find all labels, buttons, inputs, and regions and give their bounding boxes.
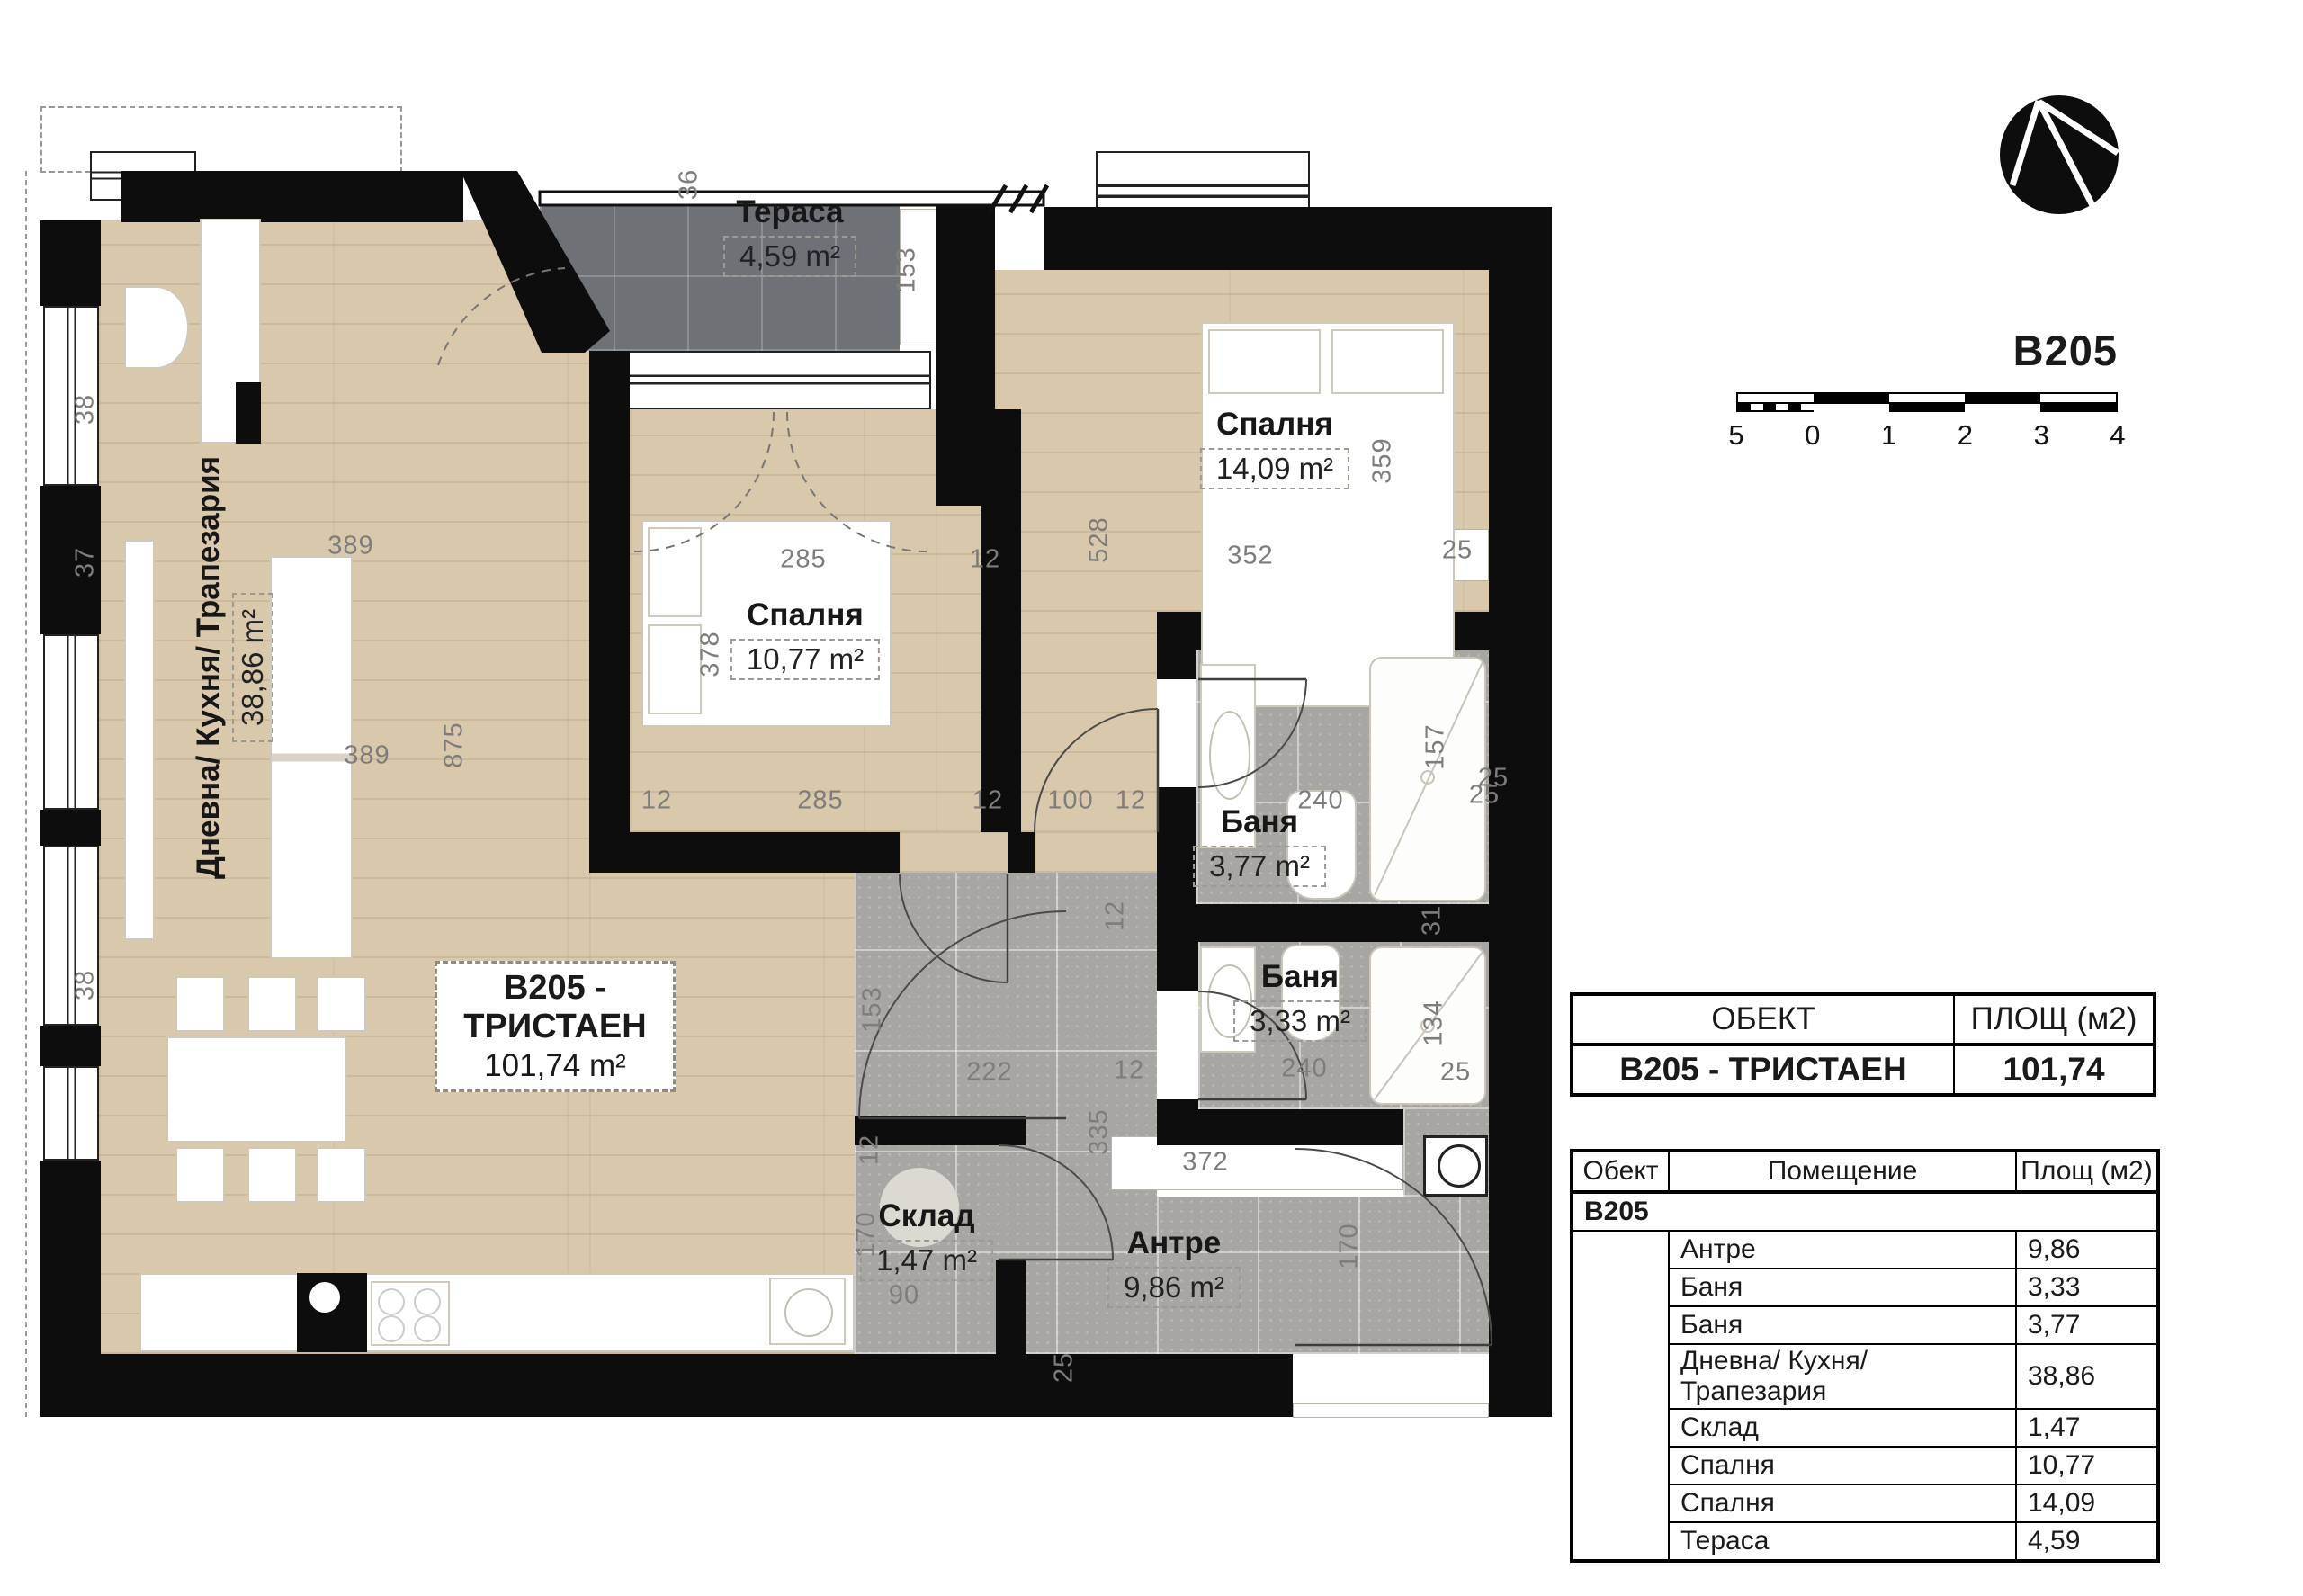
wall: [1044, 207, 1552, 270]
dimension-label: 372: [1182, 1148, 1228, 1178]
room-area: 4,59 m²: [723, 236, 856, 277]
dimension-label: 12: [970, 545, 1000, 575]
wall: [40, 1026, 101, 1066]
room-area: 38,86 m²: [232, 593, 273, 742]
dimension-label: 875: [440, 722, 470, 767]
rooms-table-row: Спалня 14,09: [1572, 1484, 2158, 1522]
sink: [309, 1282, 340, 1313]
scale-tick: 2: [1958, 419, 1973, 452]
burner: [378, 1315, 405, 1342]
dimension-label: 335: [1085, 1108, 1115, 1154]
scale-bar: [1736, 392, 2118, 412]
rooms-cell-object: [1572, 1447, 1669, 1484]
dimension-label: 153: [892, 247, 922, 292]
balcony-door: [589, 351, 931, 409]
summary-table-row: B205 - ТРИСТАЕН 101,74: [1572, 1045, 2155, 1095]
unit-code-title: B205: [1898, 326, 2118, 375]
dimension-label: 31: [1418, 905, 1447, 936]
rooms-table-row: Баня 3,77: [1572, 1306, 2158, 1344]
room-area: 1,47 m²: [860, 1240, 993, 1281]
chair: [317, 976, 366, 1032]
window: [43, 1066, 99, 1161]
unit-label-box: B205 - ТРИСТАЕН 101,74 m²: [435, 961, 676, 1092]
dimension-label: 25: [1050, 1352, 1080, 1383]
rooms-col-object: Обект: [1572, 1151, 1669, 1192]
rooms-table-row: Антре 9,86: [1572, 1231, 2158, 1269]
wall: [1157, 1099, 1198, 1109]
floor-plan: Тераса 4,59 m² Спалня 14,09 m² Спалня 10…: [0, 0, 1601, 1596]
dimension-label: 25: [1442, 536, 1473, 566]
rooms-cell-area: 10,77: [2016, 1447, 2158, 1484]
dimension-label: 25: [1440, 1058, 1471, 1088]
kitchen-appliance: [236, 382, 261, 444]
rooms-cell-area: 14,09: [2016, 1484, 2158, 1522]
rooms-col-area: Площ (м2): [2016, 1151, 2158, 1192]
room-label-bath1: Баня 3,77 m²: [1193, 804, 1326, 887]
scale-bar-row: [1738, 394, 2116, 402]
dimension-label: 12: [1114, 1056, 1144, 1086]
wall: [996, 1260, 1026, 1354]
dimension-label: 100: [1047, 786, 1093, 816]
facade-outline-dashed: [25, 171, 27, 1417]
dining-table: [166, 1036, 346, 1143]
chair: [175, 976, 225, 1032]
rooms-cell-area: 4,59: [2016, 1522, 2158, 1561]
pillow: [1208, 329, 1321, 394]
dimension-label: 389: [327, 532, 373, 561]
wall: [589, 832, 900, 873]
burner: [414, 1288, 441, 1315]
scale-tick: 3: [2034, 419, 2049, 452]
chair: [175, 1147, 225, 1203]
dimension-label: 12: [1116, 786, 1146, 816]
rooms-cell-room: Баня: [1669, 1306, 2016, 1344]
door-threshold: [1035, 832, 1157, 873]
dimension-label: 528: [1085, 516, 1115, 562]
dimension-label: 359: [1368, 437, 1398, 483]
rooms-cell-object: [1572, 1344, 1669, 1409]
rooms-cell-object: [1572, 1231, 1669, 1269]
room-name: Склад: [860, 1198, 993, 1234]
rooms-cell-area: 9,86: [2016, 1231, 2158, 1269]
room-label-bedroom-mid: Спалня 10,77 m²: [730, 597, 880, 680]
scale-tick: 5: [1728, 419, 1743, 452]
wall: [40, 220, 101, 306]
rooms-cell-room: Тераса: [1669, 1522, 2016, 1561]
dimension-label: 285: [780, 545, 826, 575]
rooms-cell-area: 3,33: [2016, 1269, 2158, 1306]
wall: [1157, 787, 1196, 904]
sofa: [270, 556, 353, 959]
rooms-cell-object: [1572, 1269, 1669, 1306]
dimension-label: 170: [1335, 1223, 1365, 1269]
room-label-bedroom-top: Спалня 14,09 m²: [1200, 407, 1349, 489]
rooms-cell-room: Дневна/ Кухня/ Трапезария: [1669, 1344, 2016, 1409]
room-name: Баня: [1193, 804, 1326, 840]
rooms-col-room: Помещение: [1669, 1151, 2016, 1192]
pillow: [648, 624, 702, 714]
tv-unit: [124, 540, 155, 940]
rooms-cell-room: Спалня: [1669, 1484, 2016, 1522]
room-name: Дневна/ Кухня/ Трапезария: [191, 456, 227, 879]
rooms-cell-area: 1,47: [2016, 1409, 2158, 1447]
wall: [40, 1354, 1293, 1417]
unit-area: 101,74 m²: [459, 1048, 651, 1084]
room-label-living: Дневна/ Кухня/ Трапезария 38,86 m²: [191, 456, 273, 879]
dimension-label: 157: [1421, 723, 1451, 769]
unit-name: B205 - ТРИСТАЕН: [459, 969, 651, 1046]
burner: [378, 1288, 405, 1315]
door-threshold: [900, 832, 1008, 873]
rooms-cell-room: Антре: [1669, 1231, 2016, 1269]
dimension-label: 37: [71, 547, 101, 578]
room-label-bath2: Баня 3,33 m²: [1233, 959, 1367, 1042]
room-name: Спалня: [730, 597, 880, 633]
rooms-cell-object: [1572, 1522, 1669, 1561]
shower: [1369, 657, 1486, 901]
dimension-label: 12: [856, 1134, 885, 1165]
dimension-label: 134: [1420, 1000, 1449, 1045]
pillow: [648, 527, 702, 617]
summary-col-object: ОБЕКТ: [1572, 994, 1954, 1045]
room-name: Тераса: [723, 194, 856, 230]
room-label-storage: Склад 1,47 m²: [860, 1198, 993, 1281]
rooms-table-row: Баня 3,33: [1572, 1269, 2158, 1306]
summary-table: ОБЕКТ ПЛОЩ (м2) B205 - ТРИСТАЕН 101,74: [1570, 992, 2156, 1097]
dimension-label: 285: [797, 786, 843, 816]
dimension-label: 12: [1101, 901, 1131, 931]
summary-area: 101,74: [1954, 1045, 2155, 1095]
scale-bar-ticks: 012345: [1736, 419, 2118, 450]
chair: [247, 976, 297, 1032]
summary-object: B205 - ТРИСТАЕН: [1572, 1045, 1954, 1095]
logo-icon: [2000, 95, 2119, 214]
dimension-label: 153: [858, 986, 888, 1032]
rooms-cell-area: 3,77: [2016, 1306, 2158, 1344]
rooms-table-row: Дневна/ Кухня/ Трапезария 38,86: [1572, 1344, 2158, 1409]
rooms-table-row: Тераса 4,59: [1572, 1522, 2158, 1561]
room-area: 9,86 m²: [1107, 1267, 1241, 1308]
wall: [1489, 207, 1552, 1417]
window: [43, 634, 99, 810]
rooms-cell-room: Баня: [1669, 1269, 2016, 1306]
rooms-table-row: Спалня 10,77: [1572, 1447, 2158, 1484]
wall: [1008, 832, 1035, 873]
summary-table-header: ОБЕКТ ПЛОЩ (м2): [1572, 994, 2155, 1045]
summary-col-area: ПЛОЩ (м2): [1954, 994, 2155, 1045]
wall: [1157, 942, 1198, 991]
dimension-label: 36: [675, 169, 704, 200]
dimension-label: 12: [972, 786, 1003, 816]
dimension-label: 352: [1227, 542, 1273, 571]
washing-machine-door: [1438, 1144, 1481, 1188]
burner: [414, 1315, 441, 1342]
scale-tick: 0: [1805, 419, 1820, 452]
sink-basin: [784, 1288, 833, 1337]
rooms-table-row: Склад 1,47: [1572, 1409, 2158, 1447]
rooms-table-group-row: B205: [1572, 1192, 2158, 1231]
dimension-label: 389: [344, 741, 390, 771]
sink-basin: [1209, 711, 1250, 800]
dimension-label: 222: [966, 1058, 1012, 1088]
rooms-table-group: B205: [1572, 1192, 2158, 1231]
rooms-cell-object: [1572, 1409, 1669, 1447]
rooms-cell-object: [1572, 1306, 1669, 1344]
dimension-label: 378: [696, 631, 726, 677]
rooms-table-header: Обект Помещение Площ (м2): [1572, 1151, 2158, 1192]
dimension-label: 240: [1281, 1054, 1327, 1084]
room-area: 10,77 m²: [730, 639, 880, 680]
chair: [247, 1147, 297, 1203]
wall: [1157, 1109, 1403, 1145]
dimension-label: 38: [71, 970, 101, 1000]
room-name: Антре: [1107, 1225, 1241, 1261]
room-name: Баня: [1233, 959, 1367, 995]
floor-plan-sheet: { "header": { "unit_code": "B205" }, "pl…: [0, 0, 2303, 1596]
room-area: 3,77 m²: [1193, 846, 1326, 887]
wall: [589, 351, 630, 873]
room-area: 14,09 m²: [1200, 448, 1349, 489]
rooms-cell-room: Склад: [1669, 1409, 2016, 1447]
dimension-label: 12: [641, 786, 672, 816]
room-name: Спалня: [1200, 407, 1349, 443]
scale-bar-row: [1738, 402, 2116, 412]
dimension-label: 90: [889, 1281, 919, 1311]
rooms-cell-room: Спалня: [1669, 1447, 2016, 1484]
side-table: [124, 286, 189, 369]
wall: [40, 810, 101, 846]
wall: [936, 205, 995, 506]
wall: [1157, 650, 1196, 679]
rooms-cell-object: [1572, 1484, 1669, 1522]
wall: [1489, 1354, 1552, 1417]
entry-threshold: [1293, 1403, 1489, 1418]
scale-tick: 4: [2110, 419, 2125, 452]
rooms-table-body: Антре 9,86 Баня 3,33 Баня 3,77 Дневна/ К…: [1572, 1231, 2158, 1561]
wall: [121, 171, 463, 222]
room-label-terrace: Тераса 4,59 m²: [723, 194, 856, 277]
dimension-label: 25: [1478, 764, 1509, 794]
pillow: [1331, 329, 1444, 394]
room-area: 3,33 m²: [1233, 1000, 1367, 1042]
room-label-hall: Антре 9,86 m²: [1107, 1225, 1241, 1308]
scale-tick: 1: [1881, 419, 1896, 452]
kitchen-counter: [139, 1273, 855, 1352]
rooms-cell-area: 38,86: [2016, 1344, 2158, 1409]
chair: [317, 1147, 366, 1203]
rooms-table: Обект Помещение Площ (м2) B205 Антре 9,8…: [1570, 1149, 2160, 1563]
dimension-label: 38: [71, 394, 101, 425]
